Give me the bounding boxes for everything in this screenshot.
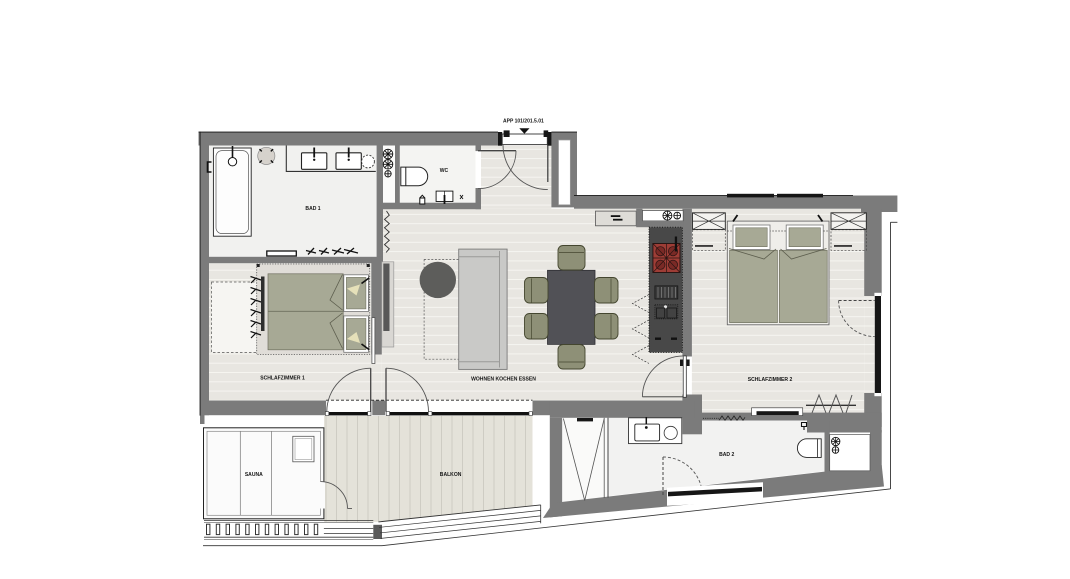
svg-text:SCHLAFZIMMER 1: SCHLAFZIMMER 1 <box>260 376 305 382</box>
svg-text:WC: WC <box>440 168 449 174</box>
svg-text:SAUNA: SAUNA <box>245 472 263 478</box>
svg-text:BALKON: BALKON <box>440 472 462 478</box>
svg-text:BAD 2: BAD 2 <box>719 452 734 458</box>
svg-text:APP 101/201.5.01: APP 101/201.5.01 <box>503 118 544 124</box>
svg-text:SCHLAFZIMMER 2: SCHLAFZIMMER 2 <box>748 377 793 383</box>
svg-text:BAD 1: BAD 1 <box>305 206 320 212</box>
svg-text:WOHNEN KOCHEN ESSEN: WOHNEN KOCHEN ESSEN <box>471 377 536 383</box>
